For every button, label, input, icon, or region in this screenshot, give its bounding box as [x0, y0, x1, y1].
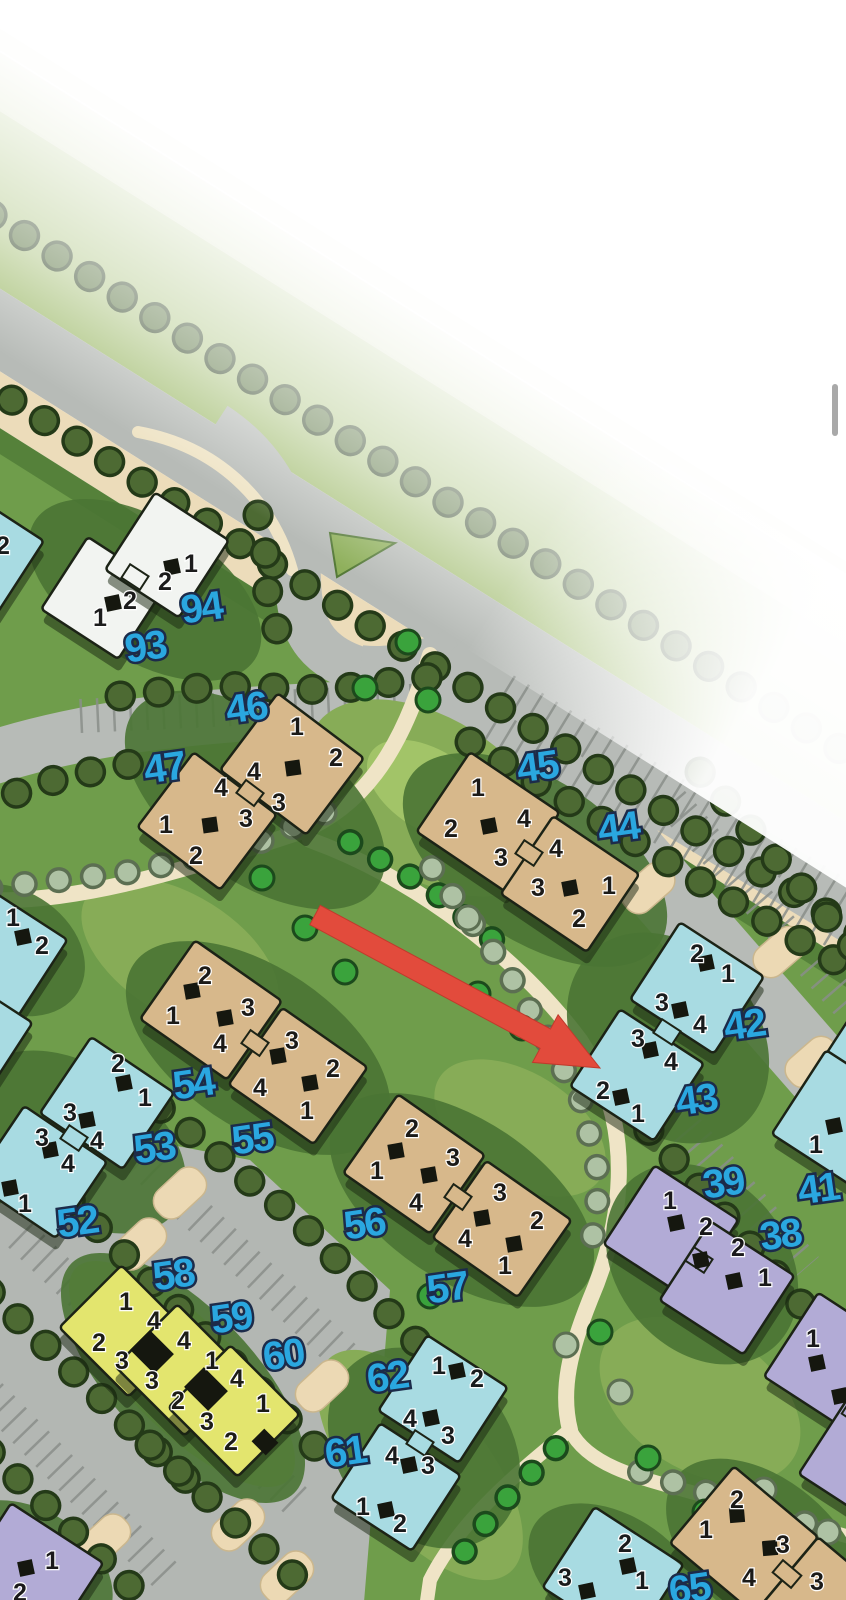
scrollbar-thumb[interactable] [832, 384, 838, 436]
unit-number: 2 [171, 1387, 185, 1415]
unit-number: 4 [693, 1011, 707, 1039]
unit-number: 2 [596, 1077, 610, 1105]
unit-number: 3 [115, 1347, 129, 1375]
building-label-60: 60 [260, 1330, 307, 1379]
unit-number: 3 [441, 1422, 455, 1450]
unit-number: 1 [138, 1084, 152, 1112]
unit-number: 2 [158, 568, 172, 596]
unit-number: 4 [147, 1307, 161, 1335]
unit-number: 2 [326, 1055, 340, 1083]
unit-number: 2 [690, 940, 704, 968]
unit-number: 3 [531, 874, 545, 902]
unit-number: 1 [184, 550, 198, 578]
unit-number: 1 [602, 872, 616, 900]
unit-number: 4 [517, 805, 531, 833]
unit-number: 1 [18, 1190, 32, 1218]
unit-number: 3 [35, 1124, 49, 1152]
unit-number: 1 [290, 713, 304, 741]
unit-number: 1 [699, 1516, 713, 1544]
building-label-58: 58 [150, 1250, 198, 1299]
unit-number: 1 [758, 1264, 772, 1292]
unit-number: 2 [730, 1486, 744, 1514]
building-label-43: 43 [673, 1075, 720, 1124]
unit-number: 2 [572, 905, 586, 933]
unit-number: 2 [198, 962, 212, 990]
unit-number: 4 [409, 1189, 423, 1217]
unit-number: 1 [356, 1493, 370, 1521]
unit-number: 1 [45, 1547, 59, 1575]
unit-number: 1 [166, 1002, 180, 1030]
building-label-52: 52 [54, 1197, 101, 1246]
unit-number: 1 [721, 960, 735, 988]
unit-number: 2 [530, 1207, 544, 1235]
unit-number: 4 [177, 1327, 191, 1355]
building-label-53: 53 [131, 1123, 178, 1172]
unit-number: 2 [393, 1510, 407, 1538]
unit-number: 1 [93, 604, 107, 632]
unit-number: 1 [159, 811, 173, 839]
unit-number: 4 [664, 1048, 678, 1076]
unit-number: 2 [731, 1234, 745, 1262]
unit-number: 3 [810, 1568, 824, 1596]
unit-number: 4 [214, 774, 228, 802]
unit-number: 4 [742, 1564, 756, 1592]
unit-number: 2 [470, 1365, 484, 1393]
unit-number: 1 [432, 1352, 446, 1380]
unit-number: 1 [6, 904, 20, 932]
unit-number: 3 [655, 989, 669, 1017]
unit-number: 3 [421, 1452, 435, 1480]
unit-number: 3 [558, 1564, 572, 1592]
unit-number: 2 [111, 1050, 125, 1078]
unit-number: 2 [699, 1213, 713, 1241]
unit-number: 3 [776, 1531, 790, 1559]
building-label-93: 93 [122, 622, 169, 671]
unit-number: 4 [549, 835, 563, 863]
unit-number: 1 [806, 1325, 820, 1353]
unit-number: 4 [247, 758, 261, 786]
building-label-42: 42 [721, 1000, 768, 1049]
unit-number: 1 [300, 1097, 314, 1125]
unit-number: 3 [272, 789, 286, 817]
unit-number: 2 [13, 1579, 27, 1600]
unit-number: 2 [189, 842, 203, 870]
unit-number: 3 [493, 1179, 507, 1207]
building-label-41: 41 [795, 1164, 843, 1213]
unit-number: 2 [92, 1329, 106, 1357]
building-label-61: 61 [322, 1427, 370, 1476]
unit-number: 1 [498, 1252, 512, 1280]
unit-number: 2 [0, 532, 10, 560]
unit-number: 2 [123, 587, 137, 615]
unit-number: 4 [403, 1405, 417, 1433]
unit-number: 2 [224, 1428, 238, 1456]
unit-number: 3 [200, 1408, 214, 1436]
unit-number: 3 [446, 1144, 460, 1172]
unit-number: 2 [444, 815, 458, 843]
site-plan-canvas: 1 2 2 1 1 2 4 3 4 3 1 2 1 2 4 3 4 3 1 2 … [0, 0, 846, 1600]
building-label-39: 39 [700, 1158, 747, 1207]
unit-number: 3 [631, 1025, 645, 1053]
unit-number: 4 [90, 1127, 104, 1155]
unit-number: 4 [213, 1030, 227, 1058]
unit-number: 4 [61, 1150, 75, 1178]
unit-number: 3 [239, 805, 253, 833]
unit-number: 3 [145, 1367, 159, 1395]
building-label-55: 55 [229, 1114, 277, 1163]
unit-number: 2 [35, 932, 49, 960]
building-label-46: 46 [223, 683, 270, 732]
building-label-62: 62 [364, 1352, 411, 1401]
unit-number: 1 [631, 1100, 645, 1128]
unit-number: 2 [618, 1530, 632, 1558]
unit-number: 1 [205, 1347, 219, 1375]
building-label-47: 47 [141, 743, 188, 792]
building-label-65: 65 [666, 1564, 714, 1600]
unit-number: 2 [405, 1115, 419, 1143]
unit-number: 3 [494, 844, 508, 872]
unit-number: 3 [241, 994, 255, 1022]
building-label-38: 38 [757, 1210, 805, 1259]
unit-number: 1 [663, 1187, 677, 1215]
unit-number: 2 [329, 744, 343, 772]
unit-number: 1 [635, 1567, 649, 1595]
unit-number: 1 [471, 774, 485, 802]
unit-number: 3 [285, 1027, 299, 1055]
building-label-56: 56 [341, 1199, 388, 1248]
unit-number: 3 [63, 1099, 77, 1127]
unit-number: 4 [385, 1442, 399, 1470]
unit-number: 1 [256, 1390, 270, 1418]
building-label-57: 57 [424, 1263, 471, 1312]
unit-number: 1 [809, 1131, 823, 1159]
unit-number: 4 [458, 1225, 472, 1253]
unit-number: 4 [230, 1365, 244, 1393]
site-plan-map: 1 2 2 1 1 2 4 3 4 3 1 2 1 2 4 3 4 3 1 2 … [0, 0, 846, 1600]
building-label-45: 45 [514, 742, 562, 791]
unit-number: 4 [253, 1074, 267, 1102]
unit-number: 1 [119, 1288, 133, 1316]
unit-number: 1 [370, 1157, 384, 1185]
building-label-59: 59 [208, 1293, 255, 1342]
